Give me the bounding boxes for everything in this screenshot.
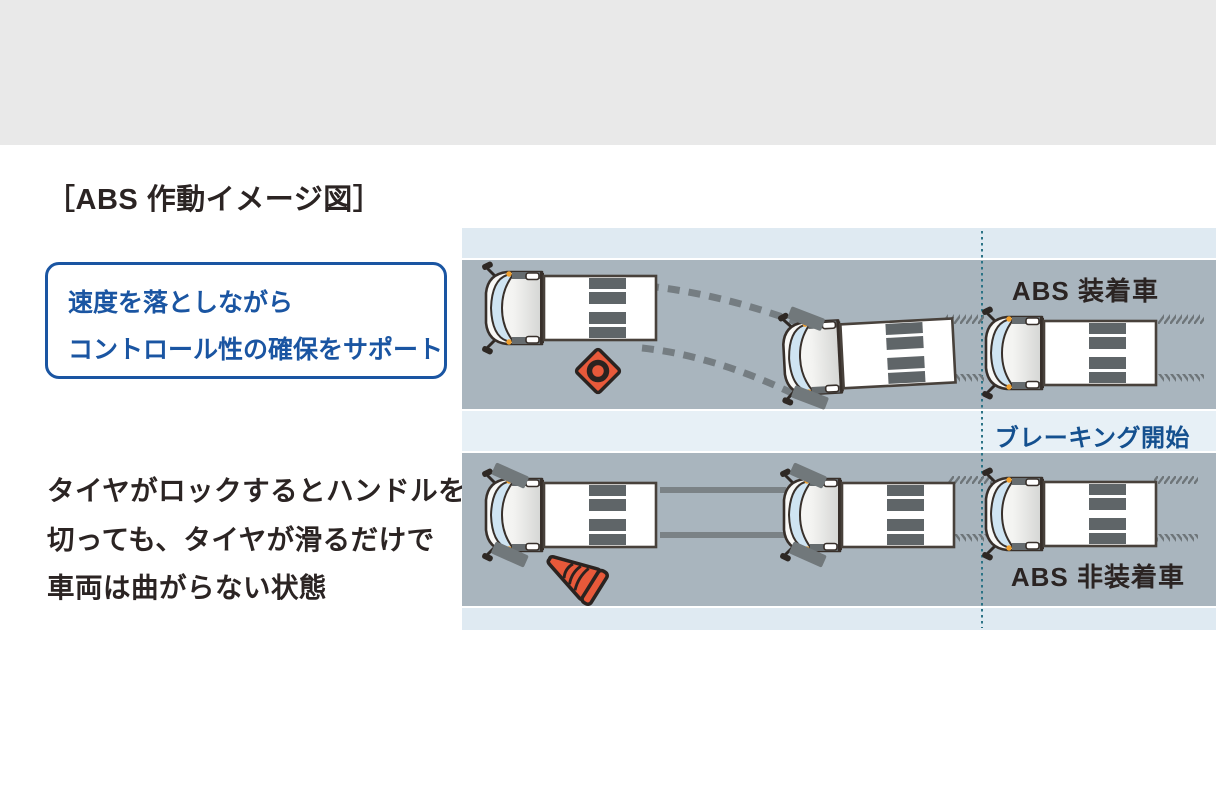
page-title: ［ABS 作動イメージ図］ bbox=[46, 176, 382, 218]
description-line-2: 切っても、タイヤが滑るだけで bbox=[47, 516, 466, 565]
road-edge-strip-bottom bbox=[462, 608, 1216, 630]
description-line-3: 車両は曲がらない状態 bbox=[47, 564, 466, 613]
abs-equipped-label: ABS 装着車 bbox=[1012, 271, 1159, 308]
description-line-1: タイヤがロックするとハンドルを bbox=[47, 467, 466, 516]
braking-start-label: ブレーキング開始 bbox=[995, 418, 1190, 453]
abs-not-equipped-label: ABS 非装着車 bbox=[1011, 557, 1185, 594]
abs-infographic: ［ABS 作動イメージ図］ 速度を落としながら コントロール性の確保をサポート … bbox=[0, 0, 1216, 810]
no-abs-description: タイヤがロックするとハンドルを 切っても、タイヤが滑るだけで 車両は曲がらない状… bbox=[47, 467, 466, 613]
top-gray-band bbox=[0, 0, 1216, 145]
road-diagram: ABS 装着車 ブレーキング開始 ABS 非装着車 bbox=[462, 228, 1216, 630]
abs-benefit-callout-box: 速度を落としながら コントロール性の確保をサポート bbox=[45, 262, 447, 379]
callout-line-1: 速度を落としながら bbox=[68, 280, 444, 327]
road-edge-strip-top bbox=[462, 228, 1216, 258]
callout-line-2: コントロール性の確保をサポート bbox=[68, 327, 444, 374]
